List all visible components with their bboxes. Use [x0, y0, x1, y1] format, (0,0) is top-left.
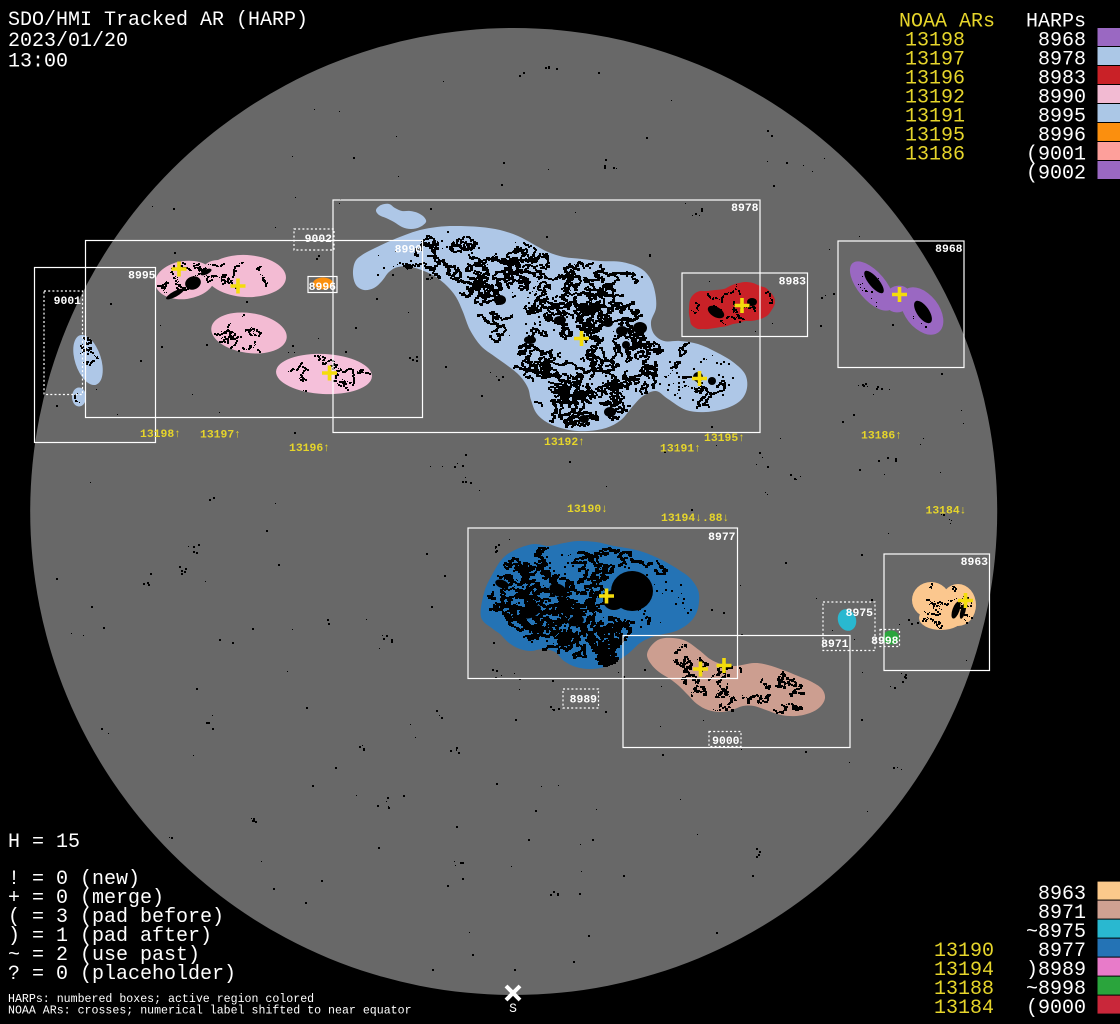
svg-text:(9002: (9002: [1026, 163, 1086, 186]
svg-text:13197↑: 13197↑: [200, 430, 241, 442]
svg-text:8978: 8978: [731, 203, 759, 215]
svg-text:8995: 8995: [128, 271, 156, 283]
svg-text:13194↓.88↓: 13194↓.88↓: [661, 513, 729, 525]
svg-text:8983: 8983: [779, 277, 807, 289]
svg-text:S: S: [509, 1001, 517, 1016]
svg-text:13:00: 13:00: [8, 51, 68, 74]
svg-text:13186: 13186: [905, 144, 965, 167]
svg-text:8971: 8971: [821, 639, 849, 651]
svg-text:8977: 8977: [708, 532, 736, 544]
svg-text:13195↑: 13195↑: [704, 433, 745, 445]
svg-text:8989: 8989: [570, 695, 598, 707]
svg-text:13184: 13184: [934, 997, 994, 1020]
svg-text:H = 15: H = 15: [8, 831, 80, 854]
svg-text:8990: 8990: [395, 245, 423, 257]
svg-text:8975: 8975: [846, 608, 874, 620]
svg-text:9000: 9000: [712, 736, 740, 748]
svg-text:8968: 8968: [935, 244, 963, 256]
svg-text:SDO/HMI Tracked AR (HARP): SDO/HMI Tracked AR (HARP): [8, 9, 308, 32]
svg-text:? = 0 (placeholder): ? = 0 (placeholder): [8, 963, 236, 986]
svg-text:9001: 9001: [54, 296, 82, 308]
svg-text:(9000: (9000: [1026, 997, 1086, 1020]
svg-text:13190↓: 13190↓: [567, 504, 608, 516]
svg-text:13191↑: 13191↑: [660, 444, 701, 456]
svg-text:NOAA ARs: crosses; numerical l: NOAA ARs: crosses; numerical label shift…: [8, 1005, 412, 1018]
svg-text:8998: 8998: [871, 636, 899, 648]
svg-text:8963: 8963: [961, 557, 989, 569]
svg-text:13196↑: 13196↑: [289, 443, 330, 455]
svg-text:13198↑: 13198↑: [140, 429, 181, 441]
svg-text:13186↑: 13186↑: [861, 431, 902, 443]
svg-text:13184↓: 13184↓: [926, 506, 967, 518]
svg-text:13192↑: 13192↑: [544, 437, 585, 449]
svg-text:9002: 9002: [305, 234, 333, 246]
svg-text:8996: 8996: [309, 282, 337, 294]
